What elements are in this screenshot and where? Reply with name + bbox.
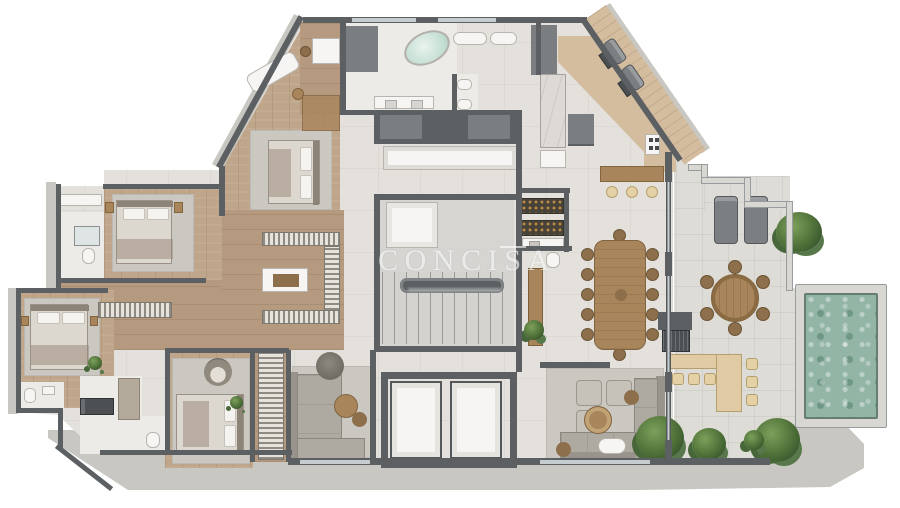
- wc-toilet-2: [457, 99, 472, 110]
- vanity-sink-2: [411, 100, 423, 109]
- wall-suite3-left: [16, 288, 21, 412]
- suite2-bed-pillow-2: [147, 208, 169, 220]
- suite2-bed-throw: [117, 239, 173, 259]
- master-bed-pillow-2: [300, 175, 312, 199]
- vanity-sink-1: [385, 100, 397, 109]
- master-bed-headboard: [313, 141, 319, 205]
- dining-chair-l2: [581, 268, 594, 281]
- wall-suite2-top: [103, 184, 223, 189]
- pool-water: [804, 293, 878, 419]
- bar-stool-6: [746, 394, 758, 406]
- wall-suite2-left: [56, 184, 61, 290]
- bar-l-counter-side: [716, 354, 742, 412]
- closet-island: [262, 268, 308, 292]
- suite3-bed-pillow-2: [62, 312, 85, 324]
- suite3-plant: [88, 356, 102, 370]
- dining-chair-r1: [646, 248, 659, 261]
- bar-stool-5: [746, 376, 758, 388]
- suite3-bed: [30, 304, 88, 370]
- suite2-nightstand-2: [174, 202, 183, 213]
- window-top-2: [438, 18, 496, 22]
- suite2-bed: [116, 200, 172, 264]
- suite3-nightstand-1: [21, 316, 29, 326]
- core-console: [383, 146, 517, 170]
- bar-stool-4: [746, 358, 758, 370]
- master-bed-throw: [269, 149, 291, 197]
- service-cabinet: [118, 378, 140, 420]
- wall-suite3-top: [16, 288, 108, 293]
- wall-foyer-east: [516, 346, 522, 372]
- suite2-shower: [74, 226, 100, 246]
- watermark-text: CONCISA: [378, 244, 556, 277]
- round-table-chair-3: [756, 307, 770, 321]
- master-desk: [312, 38, 340, 64]
- wine-rack-2: [520, 220, 564, 236]
- hall-wardrobe: [258, 352, 284, 460]
- living-side-table-2: [556, 442, 571, 457]
- suite2-toilet: [82, 248, 95, 264]
- suite4-round-chair: [204, 358, 232, 386]
- bar-stool-3: [704, 373, 716, 385]
- refrigerator: [568, 114, 594, 146]
- cooktop-burners: [649, 138, 653, 142]
- suite3-basin: [42, 386, 55, 395]
- wall-stair-top: [374, 194, 520, 200]
- dressing-cabinet: [302, 95, 340, 131]
- wall-corridor-south: [56, 278, 206, 283]
- wall-suite4-top: [165, 348, 289, 353]
- island-stool-1: [606, 186, 618, 198]
- wall-living-north: [540, 362, 610, 368]
- living-side-table-1: [624, 390, 639, 405]
- round-table-chair-1: [728, 260, 742, 274]
- washer-dryer: [80, 398, 114, 415]
- watermark-logo: CONCISA: [378, 244, 544, 278]
- master-bed: [268, 140, 320, 204]
- suite2-nightstand-1: [105, 202, 114, 213]
- suite3-toilet: [24, 388, 36, 403]
- elevator-frame: [381, 372, 517, 468]
- sidewalk-left-upper: [46, 182, 56, 288]
- window-top-1: [352, 18, 416, 22]
- wall-core-east: [516, 110, 522, 346]
- closet-wardrobe-block-2: [342, 26, 378, 72]
- master-desk-stool: [300, 46, 311, 57]
- wall-hall-east: [286, 350, 291, 462]
- dining-table: [594, 240, 646, 350]
- closet-wardrobe-block-1: [531, 25, 557, 75]
- round-table-chair-4: [728, 322, 742, 336]
- wall-closet-east: [536, 22, 541, 75]
- bar-stool-1: [672, 373, 684, 385]
- suite3-bed-headboard: [31, 305, 89, 311]
- core-band-inset-1: [380, 115, 422, 139]
- pantry-tall-unit: [540, 74, 566, 148]
- tv-coffee-table-2: [352, 412, 367, 427]
- wall-hall-west: [250, 350, 255, 462]
- facade-post-1: [665, 152, 672, 182]
- closet-bench-1: [453, 32, 487, 45]
- round-table-chair-6: [700, 275, 714, 289]
- wine-rack-1: [520, 198, 564, 214]
- pantry-counter: [540, 150, 566, 168]
- corridor-wardrobe: [98, 302, 172, 318]
- facade-post-2: [665, 252, 672, 276]
- wall-master-left: [219, 166, 225, 216]
- closet-bench-2: [490, 32, 517, 45]
- stair-void-box: [386, 202, 438, 248]
- core-band-inset-2: [468, 115, 510, 139]
- kitchen-island: [600, 166, 664, 182]
- wall-pantry-east: [564, 188, 569, 252]
- parapet-east: [786, 201, 793, 291]
- terrace-round-table: [711, 274, 759, 322]
- round-table-chair-5: [700, 307, 714, 321]
- bar-stool-2: [688, 373, 700, 385]
- grill-wall: [658, 312, 692, 330]
- bar-l-counter-top: [670, 354, 722, 369]
- master-bed-pillow-1: [300, 147, 312, 171]
- dining-plant: [524, 320, 544, 340]
- suite3-bed-throw: [31, 345, 89, 365]
- closet-island-top: [273, 274, 299, 287]
- suite2-bed-headboard: [117, 201, 173, 207]
- glass-facade-east: [666, 155, 671, 463]
- wall-tvroom-east: [370, 350, 376, 462]
- island-stool-3: [646, 186, 658, 198]
- wall-suite3-bottom: [16, 408, 62, 413]
- living-coffee-table: [584, 406, 612, 434]
- plant-terrace-south-1: [636, 416, 684, 460]
- closet-rack-north: [262, 232, 340, 246]
- watermark-overline: [500, 246, 526, 248]
- wall-wc-divider: [452, 74, 457, 114]
- facade-post-3: [665, 372, 672, 392]
- wall-pantry-north: [516, 188, 570, 193]
- service-toilet: [146, 432, 160, 448]
- dining-chair-l5: [581, 328, 594, 341]
- dining-centerpiece: [615, 289, 627, 301]
- closet-rack-south: [262, 310, 340, 324]
- plant-terrace-south-2: [692, 428, 726, 460]
- dining-chair-r3: [646, 288, 659, 301]
- step-lounger-1: [714, 196, 738, 244]
- plant-terrace-south-4: [744, 430, 764, 450]
- watermark-subtext: [408, 288, 500, 291]
- dining-chair-l4: [581, 308, 594, 321]
- island-stool-2: [626, 186, 638, 198]
- master-vanity: [374, 96, 434, 109]
- cooktop: [645, 134, 660, 155]
- dining-chair-l1: [581, 248, 594, 261]
- living-lounge-chair: [598, 438, 626, 454]
- round-table-chair-2: [756, 275, 770, 289]
- plant-terrace-north: [776, 212, 822, 252]
- dining-chair-l3: [581, 288, 594, 301]
- living-pouf-1: [576, 380, 602, 406]
- dining-chair-r2: [646, 268, 659, 281]
- suite4-bed-pillow-2: [224, 425, 236, 447]
- wall-service-left: [58, 408, 63, 448]
- floor-plan-canvas: CONCISA: [0, 0, 900, 508]
- wall-stair-bottom: [374, 346, 520, 352]
- wc-toilet-1: [457, 79, 472, 90]
- suite2-bed-pillow-1: [123, 208, 145, 220]
- wall-suite4-left: [165, 348, 170, 455]
- tv-pouf: [316, 352, 344, 380]
- wall-bath-divider: [340, 22, 346, 115]
- suite4-bed-throw: [183, 401, 209, 447]
- floor-suite2-bath: [56, 212, 104, 280]
- suite3-nightstand-2: [90, 316, 98, 326]
- suite4-plant: [230, 396, 243, 409]
- suite3-bed-pillow-1: [37, 312, 60, 324]
- closet-rack-east: [324, 246, 340, 316]
- suite2-vanity: [60, 194, 102, 206]
- window-bottom-2: [540, 460, 650, 464]
- wall-service-bottom: [100, 450, 292, 455]
- wall-bath-south: [345, 110, 457, 115]
- window-bottom-1: [300, 460, 370, 464]
